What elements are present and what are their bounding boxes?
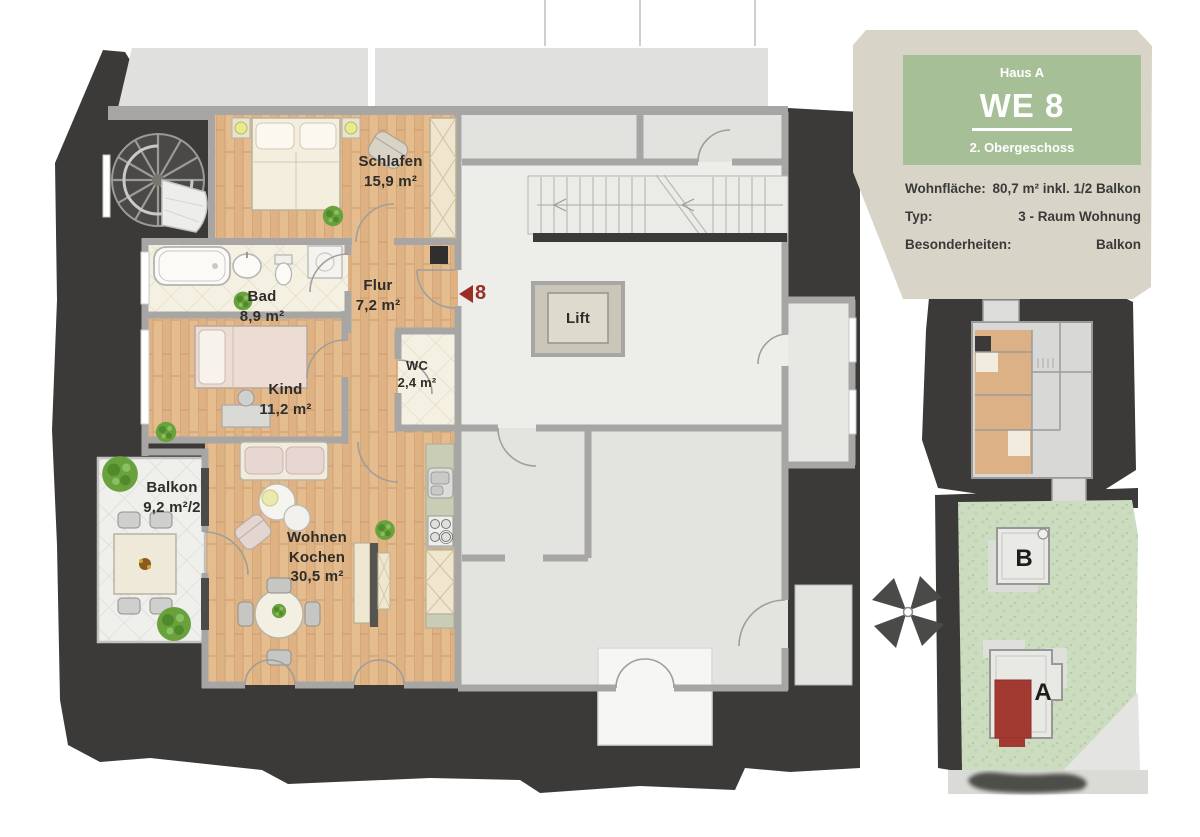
room-name: Bad	[248, 288, 277, 305]
fact-row-typ: Typ: 3 - Raum Wohnung	[905, 209, 1141, 224]
room-name: Kochen	[289, 549, 345, 566]
room-area: 8,9 m²	[240, 308, 285, 325]
site-plan	[948, 500, 1148, 794]
neighbor-buildings-top	[108, 0, 788, 120]
room-name: Kind	[268, 381, 302, 398]
room-name: Wohnen	[287, 529, 347, 546]
fact-value: 3 - Raum Wohnung	[1018, 209, 1141, 224]
building-name: Haus A	[1000, 65, 1044, 80]
fact-label: Wohnfläche:	[905, 181, 986, 196]
fact-label: Typ:	[905, 209, 933, 224]
building-b-letter: B	[1015, 545, 1032, 572]
shaft-box	[430, 246, 448, 264]
room-area: 2,4 m²	[398, 375, 437, 390]
fact-label: Besonderheiten:	[905, 237, 1012, 252]
room-label-wc: WC 2,4 m²	[386, 358, 448, 392]
building-a-letter: A	[1034, 679, 1051, 706]
room-name: Balkon	[146, 479, 197, 496]
redacted-street-name	[968, 772, 1087, 793]
room-area: 11,2 m²	[259, 401, 311, 418]
fact-value: 80,7 m² inkl. 1/2 Balkon	[992, 181, 1141, 196]
unit-info-card: Haus A WE 8 2. Obergeschoss	[903, 55, 1141, 165]
room-name: Schlafen	[358, 153, 422, 170]
unit-entrance-marker[interactable]: 8	[459, 282, 486, 305]
kitchen-counter	[426, 444, 454, 628]
site-label-a: A	[1025, 677, 1061, 708]
stairwell	[528, 175, 788, 242]
unit-facts-table: Wohnfläche: 80,7 m² inkl. 1/2 Balkon Typ…	[905, 181, 1141, 265]
fact-value: Balkon	[1096, 237, 1141, 252]
fact-row-wohnflaeche: Wohnfläche: 80,7 m² inkl. 1/2 Balkon	[905, 181, 1141, 196]
floorplan-page: Schlafen 15,9 m² Bad 8,9 m² Flur 7,2 m² …	[0, 0, 1200, 837]
compass-icon	[872, 576, 944, 648]
room-label-kind: Kind 11,2 m²	[228, 380, 343, 419]
room-label-schlafen: Schlafen 15,9 m²	[328, 152, 453, 191]
room-name: Flur	[363, 277, 392, 294]
room-label-balkon: Balkon 9,2 m²/2	[112, 478, 232, 517]
room-area: 7,2 m²	[356, 297, 401, 314]
room-name: WC	[406, 358, 428, 373]
fact-row-besonderheiten: Besonderheiten: Balkon	[905, 237, 1141, 252]
entrance-arrow-icon	[459, 285, 473, 303]
room-label-wohnen-kochen: Wohnen Kochen 30,5 m²	[258, 528, 376, 587]
floor-name: 2. Obergeschoss	[970, 140, 1075, 155]
unit-number: 8	[475, 282, 486, 305]
unit-name: WE 8	[972, 87, 1073, 131]
room-area: 30,5 m²	[290, 568, 343, 585]
site-label-b: B	[1006, 543, 1042, 574]
room-area: 9,2 m²/2	[143, 499, 200, 516]
lift-label: Lift	[546, 309, 610, 329]
lift-text: Lift	[566, 310, 590, 327]
room-area: 15,9 m²	[364, 173, 417, 190]
room-label-bad: Bad 8,9 m²	[202, 287, 322, 326]
room-label-flur: Flur 7,2 m²	[332, 276, 424, 315]
mini-floorplan	[972, 300, 1092, 502]
